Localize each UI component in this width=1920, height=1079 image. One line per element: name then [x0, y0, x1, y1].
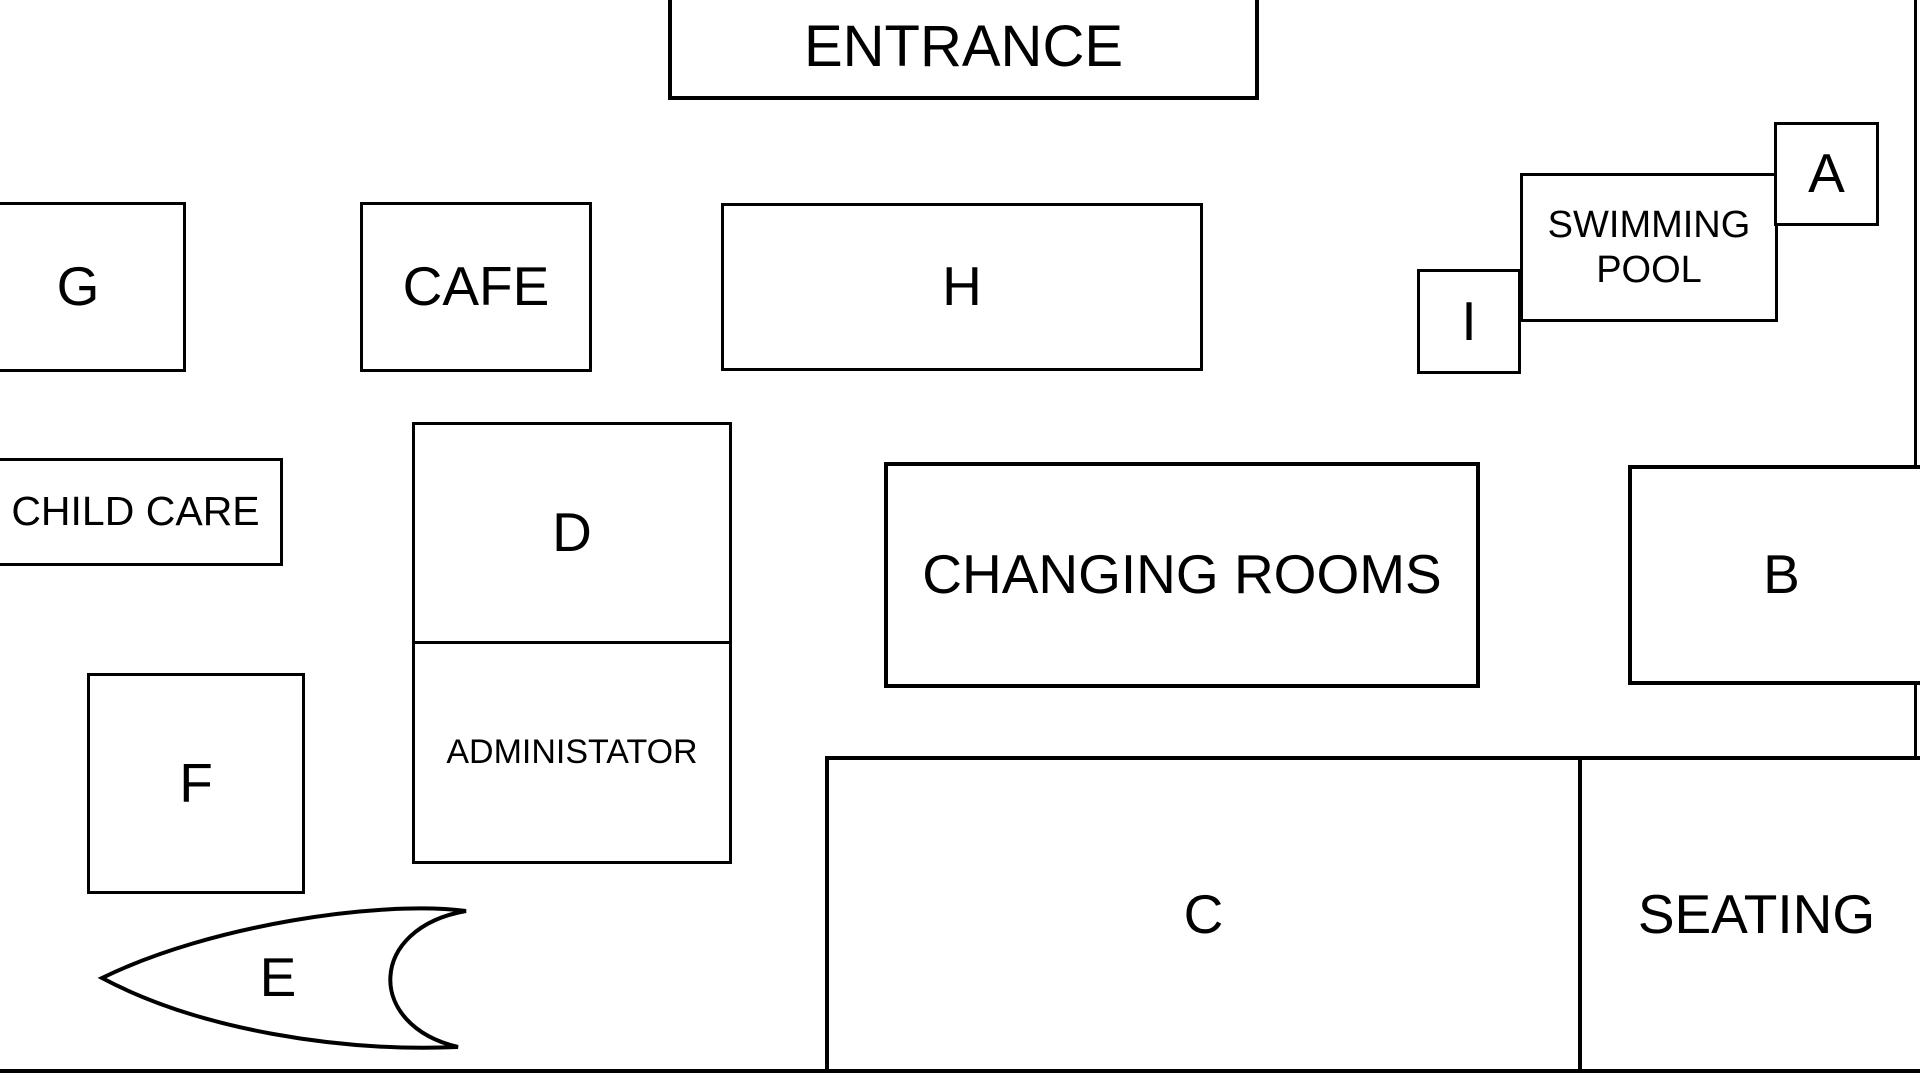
room-cafe: CAFE [360, 202, 592, 372]
room-f: F [87, 673, 305, 894]
room-administator: ADMINISTATOR [412, 644, 732, 864]
room-entrance: ENTRANCE [668, 0, 1259, 100]
room-b: B [1628, 465, 1920, 685]
floor-plan-canvas: ENTRANCE G CAFE H SWIMMING POOL A I CHIL… [0, 0, 1920, 1079]
room-changing-rooms: CHANGING ROOMS [884, 462, 1480, 688]
room-h: H [721, 203, 1203, 371]
room-i: I [1417, 269, 1521, 374]
room-seating: SEATING [1582, 756, 1920, 1073]
room-e-label: E [238, 947, 318, 1007]
room-c: C [825, 756, 1582, 1073]
room-g: G [0, 202, 186, 372]
room-d: D [412, 422, 732, 644]
room-a: A [1774, 122, 1879, 226]
room-child-care: CHILD CARE [0, 458, 283, 566]
room-swimming-pool: SWIMMING POOL [1520, 173, 1778, 322]
